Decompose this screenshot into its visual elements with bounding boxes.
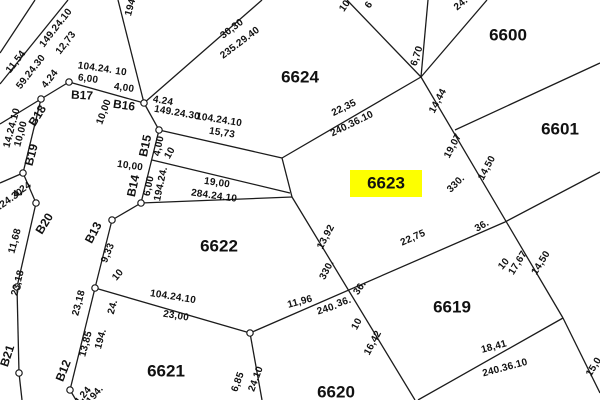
dimension-label: 24. [106,299,120,316]
dimension-label: 284.24.10 [190,187,238,204]
dimension-label: 10,00 [95,98,114,126]
survey-node-marker [33,200,39,206]
boundary-line [418,318,563,400]
dimension-label: 4,00 [113,81,135,95]
survey-point-label-B17: B17 [71,88,94,103]
boundary-line [0,0,35,53]
dimension-label: 194. [123,0,139,17]
parcel-label-6620[interactable]: 6620 [317,382,355,400]
parcel-label-6621[interactable]: 6621 [147,361,185,380]
survey-node-marker [92,285,98,291]
dimension-label: 18,41 [480,338,508,355]
dimension-label: 10 [162,145,177,161]
dimension-label: 14,44 [427,87,449,115]
plat-map-stage: 149.24.1012,7311,5459.24.304.24104.24.10… [0,0,600,400]
dimension-label: 11,68 [7,227,24,255]
dimension-label: 4.24 [40,68,61,91]
survey-node-marker [156,127,162,133]
boundary-line [19,373,22,400]
parcel-label-6600[interactable]: 6600 [489,25,527,44]
dimension-label: 10,00 [116,159,144,174]
dimension-label: 11,96 [286,293,314,310]
dimension-label: 10 [350,316,365,332]
survey-node-marker [109,217,115,223]
boundary-line [144,0,262,103]
parcel-label-6622[interactable]: 6622 [200,236,238,255]
boundary-line [17,287,19,373]
dimension-label: 6 [363,0,375,11]
dimension-label: 194.24. [152,166,170,202]
dimension-label: 15,73 [208,126,236,141]
survey-point-label-B14: B14 [124,173,142,198]
dimension-label: 10 [115,66,128,79]
dimension-label: 14,50 [476,154,498,182]
parcel-label-6624[interactable]: 6624 [281,67,319,86]
survey-point-label-B16: B16 [112,97,136,114]
survey-node-marker [247,330,253,336]
survey-point-label-B19: B19 [22,142,41,167]
dimension-label: 194. [93,328,109,350]
survey-point-label-B20: B20 [33,210,57,236]
dimension-label: 36. [351,279,368,297]
dimension-label: 24.10 [247,365,266,393]
boundary-line [505,172,600,222]
parcel-label-6623[interactable]: 6623 [367,173,405,192]
dimension-label: 19,00 [203,176,231,191]
dimension-label: 22,75 [399,228,427,249]
survey-point-label-B13: B13 [82,219,105,245]
survey-node-marker [138,200,144,206]
boundary-line [421,0,487,77]
dimension-label: 13,92 [315,223,337,251]
dimension-label: 149.24.30 [153,104,201,123]
dimension-label: 10 [337,0,353,14]
dimension-label: 36. [335,295,352,310]
dimension-label: 330. [318,259,337,282]
dimension-label: 104.24.10 [149,288,197,306]
survey-point-label-B12: B12 [53,358,74,384]
dimension-label: 14,50 [530,249,553,277]
survey-node-marker [66,79,72,85]
survey-node-marker [141,100,147,106]
dimension-label: 6,00 [77,72,99,86]
dimension-label: 23,18 [9,269,26,297]
parcel-label-6619[interactable]: 6619 [433,297,471,316]
dimension-label: 10 [110,267,126,283]
boundary-line [112,203,141,220]
dimension-label: 9,33 [99,241,117,264]
dimension-label: 9.24.30 [0,187,26,216]
dimension-label: 36. [473,218,491,235]
parcel-labels-layer: 66246600660166236622662166196620 [147,25,579,400]
survey-node-marker [20,170,26,176]
survey-point-label-B21: B21 [0,343,17,369]
dimension-label: 23,00 [162,309,190,324]
dimension-label: 6,85 [229,370,246,393]
parcel-label-6601[interactable]: 6601 [541,119,579,138]
plat-map[interactable]: 149.24.1012,7311,5459.24.304.24104.24.10… [0,0,600,400]
boundary-line [421,0,428,77]
dimension-label: 330. [445,173,467,195]
boundary-line [347,0,421,77]
dimension-label: 24. [452,0,470,13]
dimension-label: 23,18 [70,289,87,317]
survey-node-marker [67,387,73,393]
dimension-label: 13,85 [77,330,94,358]
survey-node-marker [38,96,44,102]
survey-node-marker [16,370,22,376]
dimension-labels-layer: 149.24.1012,7311,5459.24.304.24104.24.10… [0,0,600,400]
